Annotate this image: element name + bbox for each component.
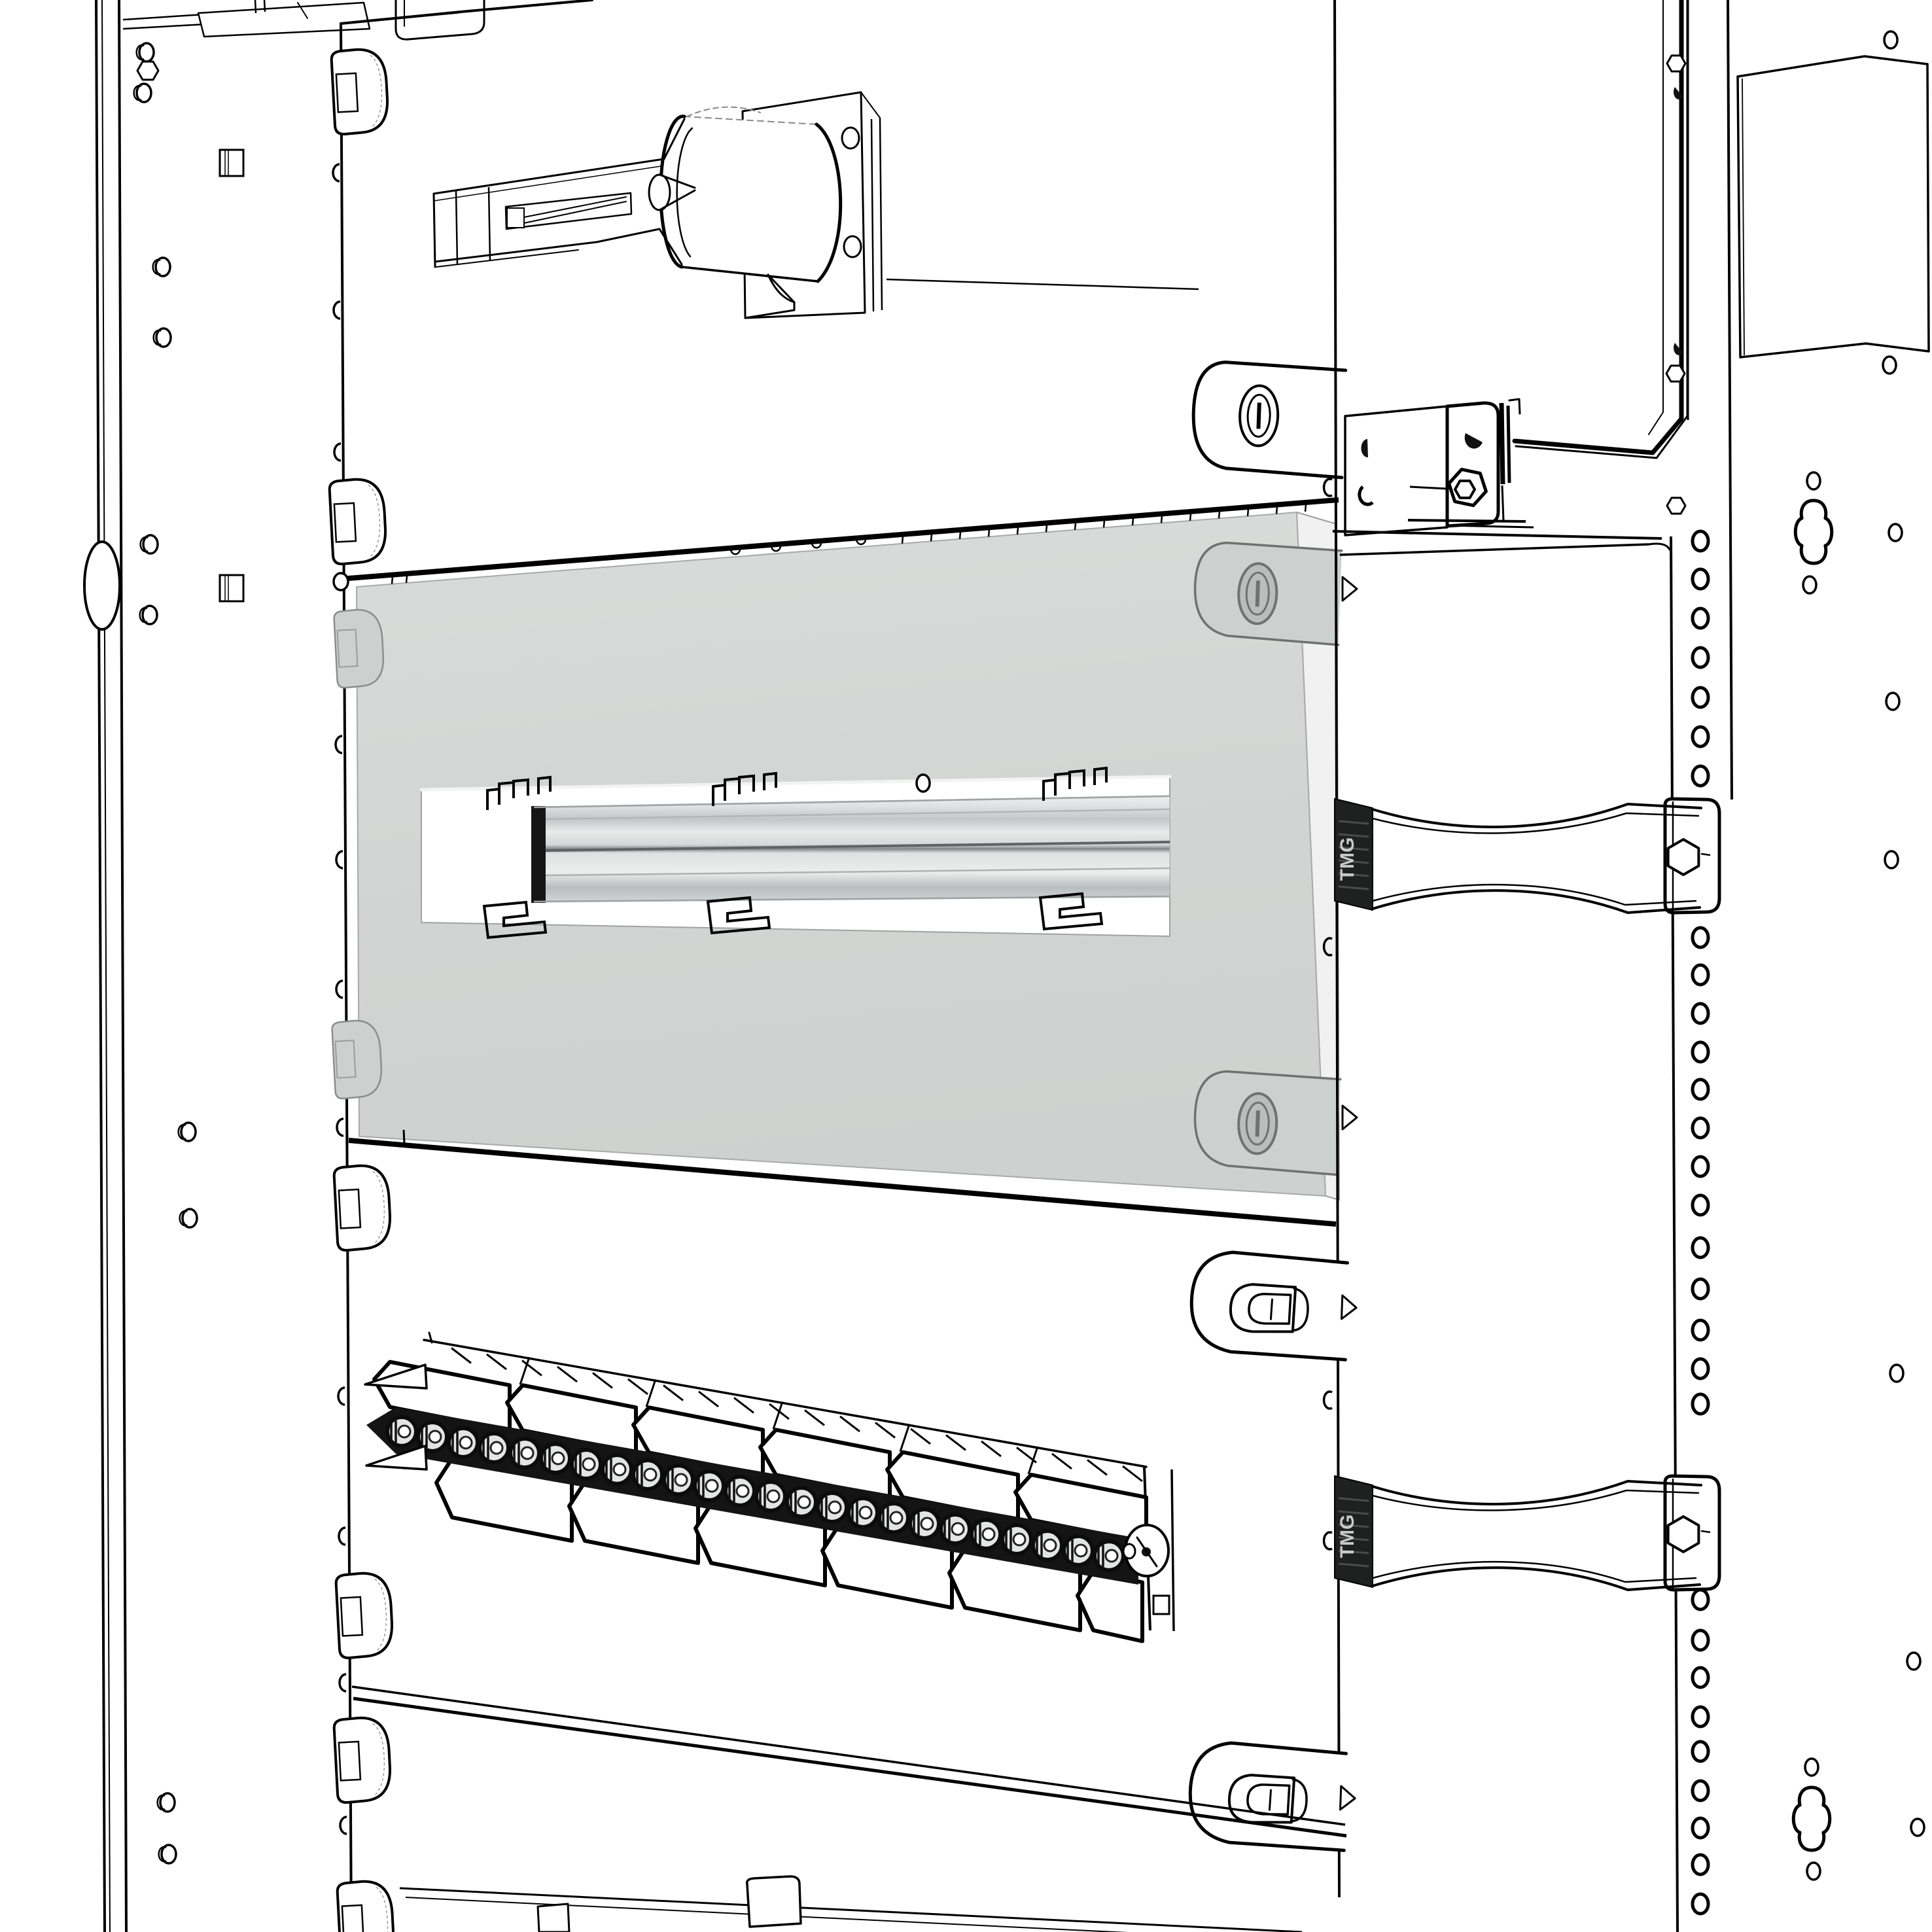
svg-text:TMG: TMG	[1337, 837, 1358, 881]
svg-text:TMG: TMG	[1337, 1515, 1358, 1558]
